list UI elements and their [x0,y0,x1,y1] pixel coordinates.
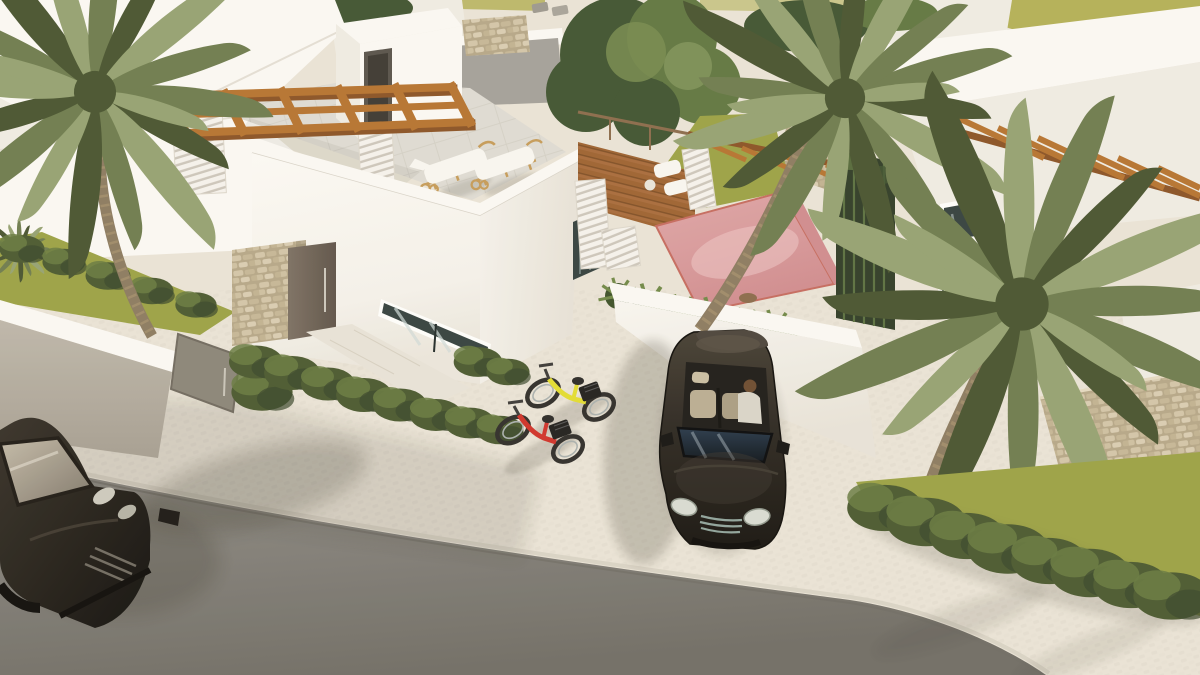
sunlight-wash [0,0,1200,675]
render-canvas [0,0,1200,675]
scene-svg [0,0,1200,675]
